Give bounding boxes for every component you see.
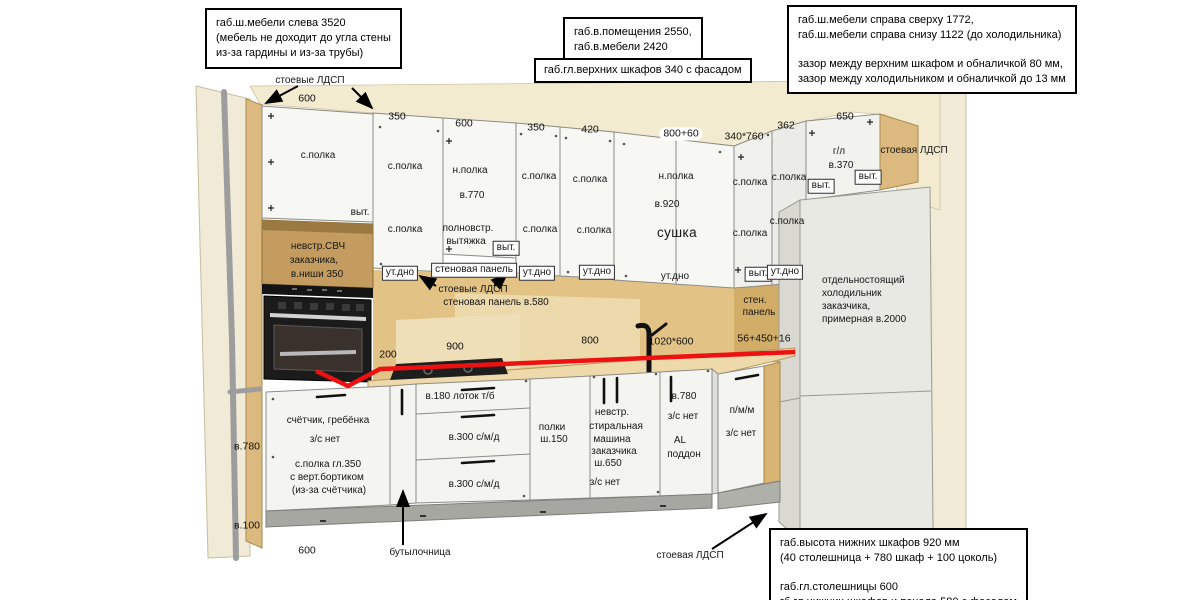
- label-cab5-shelf1: с.полка: [573, 175, 608, 186]
- label-cab9-vyt2: выт.: [808, 179, 835, 194]
- dim-top-420: 420: [581, 124, 599, 135]
- left-side-panel: [246, 99, 262, 548]
- label-ldsp-right: стоевая ЛДСП: [880, 146, 947, 157]
- lower-cab-sink: [660, 369, 712, 496]
- label-fridge-1: отдельностоящий: [822, 276, 905, 287]
- dim-top-650: 650: [836, 111, 854, 122]
- label-meter-1: счётчик, гребёнка: [287, 416, 370, 427]
- oven: [264, 296, 371, 382]
- label-fridge-4: примерная в.2000: [822, 315, 906, 326]
- callout-line: габ.высота нижних шкафов 920 мм: [780, 536, 1017, 551]
- kitchen-design-drawing: 600 350 600 350 420 800+60 340*760 362 6…: [0, 0, 1200, 600]
- label-fridge-3: заказчика,: [822, 302, 870, 313]
- dim-v100: в.100: [234, 520, 260, 531]
- callout-line: габ.ш.мебели справа сверху 1772,: [798, 13, 1066, 28]
- label-cab3-hood2: вытяжка: [446, 237, 485, 248]
- dim-1020x600: 1020*600: [649, 336, 694, 347]
- callout-lower-height: габ.высота нижних шкафов 920 мм (40 стол…: [769, 528, 1028, 600]
- dim-200: 200: [379, 349, 397, 360]
- dim-top-350b: 350: [527, 122, 545, 133]
- label-cab8-shelf2: с.полка: [770, 217, 805, 228]
- callout-line: из-за гардины и из-за трубы): [216, 46, 391, 61]
- label-micro-1: невстр.СВЧ: [291, 242, 345, 253]
- label-cab4-utdno: ут.дно: [519, 266, 555, 281]
- label-cab9-gl: г/л: [833, 147, 845, 158]
- label-cab3-npolka: н.полка: [452, 166, 487, 177]
- label-cab3-vyt: выт.: [493, 241, 520, 256]
- label-ldsp-bottom: стоевая ЛДСП: [656, 551, 723, 562]
- label-fridge-2: холодильник: [822, 289, 881, 300]
- label-washer-5: ш.650: [594, 459, 622, 470]
- label-washer-zs: з/с нет: [590, 478, 620, 489]
- callout-left-width: габ.ш.мебели слева 3520 (мебель не доход…: [205, 8, 402, 69]
- label-smd-2: в.300 с/м/д: [449, 480, 500, 491]
- label-sinkcab-zs: з/с нет: [668, 412, 698, 423]
- label-wallpanel-580: стеновая панель в.580: [443, 298, 548, 309]
- label-cab3-height: в.770: [460, 191, 485, 202]
- label-sinkcab-poddon: поддон: [667, 450, 701, 461]
- callout-line: габ.гл.верхних шкафов 340 с фасадом: [544, 63, 742, 78]
- label-cab7-shelf1: с.полка: [733, 178, 768, 189]
- label-pmm: п/м/м: [730, 406, 755, 417]
- label-cab6-sushka: сушка: [657, 226, 697, 240]
- dim-v780: в.780: [234, 441, 260, 452]
- callout-line: габ.гл.столешницы 600: [780, 580, 1017, 595]
- label-cab5-shelf2: с.полка: [577, 226, 612, 237]
- label-micro-2: заказчика,: [290, 256, 338, 267]
- callout-line: габ.в.помещения 2550,: [574, 25, 692, 40]
- fridge: [779, 187, 933, 540]
- dim-800: 800: [581, 335, 599, 346]
- label-cab4-shelf1: с.полка: [522, 172, 557, 183]
- label-washer-2: стиральная: [589, 422, 643, 433]
- label-cab9-vyt1: выт.: [855, 170, 882, 185]
- callout-line: (40 столешница + 780 шкаф + 100 цоколь): [780, 551, 1017, 566]
- label-cab9-height: в.370: [829, 161, 854, 172]
- callout-line: [798, 43, 1066, 57]
- label-cab2-shelf1: с.полка: [388, 162, 423, 173]
- callout-line: гб.гл.нижних шкафов и пенала 580 с фасад…: [780, 595, 1017, 600]
- left-wall: [196, 86, 250, 558]
- label-smd-1: в.300 с/м/д: [449, 433, 500, 444]
- dim-900: 900: [446, 341, 464, 352]
- label-cab1-vyt: выт.: [351, 208, 370, 219]
- label-sten-2: панель: [743, 308, 776, 319]
- label-shelves-1: полки: [539, 423, 566, 434]
- label-cab2-utdno: ут.дно: [382, 266, 418, 281]
- label-cab1-shelf: с.полка: [301, 151, 336, 162]
- label-cab7-shelf2: с.полка: [733, 229, 768, 240]
- label-cab6-npolka: н.полка: [658, 172, 693, 183]
- callout-line: зазор между верхним шкафом и обналичкой …: [798, 57, 1066, 72]
- label-bottle: бутылочница: [389, 548, 450, 559]
- label-sinkcab-height: в.780: [672, 392, 697, 403]
- dim-top-362: 362: [777, 120, 795, 131]
- label-sinkcab-al: AL: [674, 436, 686, 447]
- callout-right-width: габ.ш.мебели справа сверху 1772, габ.ш.м…: [787, 5, 1077, 94]
- dim-top-600a: 600: [298, 93, 316, 104]
- label-cab8-shelf1: с.полка: [772, 173, 807, 184]
- upper-cab-600-left: [262, 106, 373, 222]
- upper-cab-350-a: [373, 113, 443, 272]
- dim-top-350a: 350: [388, 111, 406, 122]
- dim-56-450-16: 56+450+16: [737, 333, 790, 344]
- label-meter-2: з/с нет: [310, 435, 340, 446]
- label-washer-3: машина: [593, 435, 630, 446]
- label-cab5-utdno: ут.дно: [579, 265, 615, 280]
- label-cab2-shelf2: с.полка: [388, 225, 423, 236]
- upper-cab-350-b: [516, 123, 560, 276]
- label-micro-3: в.ниши 350: [291, 270, 343, 281]
- label-cab4-shelf2: с.полка: [523, 225, 558, 236]
- label-cab8-utdno: ут.дно: [767, 265, 803, 280]
- right-ldsp-strip: [764, 362, 780, 484]
- callout-line: зазор между холодильником и обналичкой д…: [798, 72, 1066, 87]
- label-meter-4: с верт.бортиком: [290, 473, 364, 484]
- label-tray: в.180 лоток т/б: [425, 392, 494, 403]
- label-meter-5: (из-за счётчика): [292, 486, 366, 497]
- dim-top-340x760: 340*760: [724, 131, 763, 142]
- label-wallpanel-box: стеновая панель: [431, 263, 517, 278]
- label-meter-3: с.полка гл.350: [295, 460, 361, 471]
- label-washer-1: невстр.: [595, 408, 629, 419]
- label-pmm-zs: з/с нет: [726, 429, 756, 440]
- callout-line: габ.ш.мебели слева 3520: [216, 16, 391, 31]
- dim-top-600b: 600: [455, 118, 473, 129]
- label-sten-1: стен.: [743, 296, 766, 307]
- callout-room-height: габ.в.помещения 2550, габ.в.мебели 2420: [563, 17, 703, 63]
- label-cab3-hood1: полновстр.: [443, 224, 494, 235]
- dim-600-bottom: 600: [298, 545, 316, 556]
- callout-line: габ.ш.мебели справа снизу 1122 (до холод…: [798, 28, 1066, 43]
- callout-line: [780, 566, 1017, 580]
- dim-top-800-60: 800+60: [659, 127, 702, 140]
- label-cab6-height: в.920: [655, 200, 680, 211]
- callout-line: габ.в.мебели 2420: [574, 40, 692, 55]
- label-cab6-utdno: ут.дно: [661, 272, 689, 283]
- upper-cab-420: [560, 127, 614, 279]
- callout-upper-depth: габ.гл.верхних шкафов 340 с фасадом: [534, 58, 752, 83]
- label-ldsp-top: стоевые ЛДСП: [275, 76, 344, 87]
- label-washer-4: заказчика: [591, 447, 636, 458]
- callout-line: (мебель не доходит до угла стены: [216, 31, 391, 46]
- label-shelves-2: ш.150: [540, 435, 568, 446]
- label-ldsp-mid: стоевые ЛДСП: [438, 285, 507, 296]
